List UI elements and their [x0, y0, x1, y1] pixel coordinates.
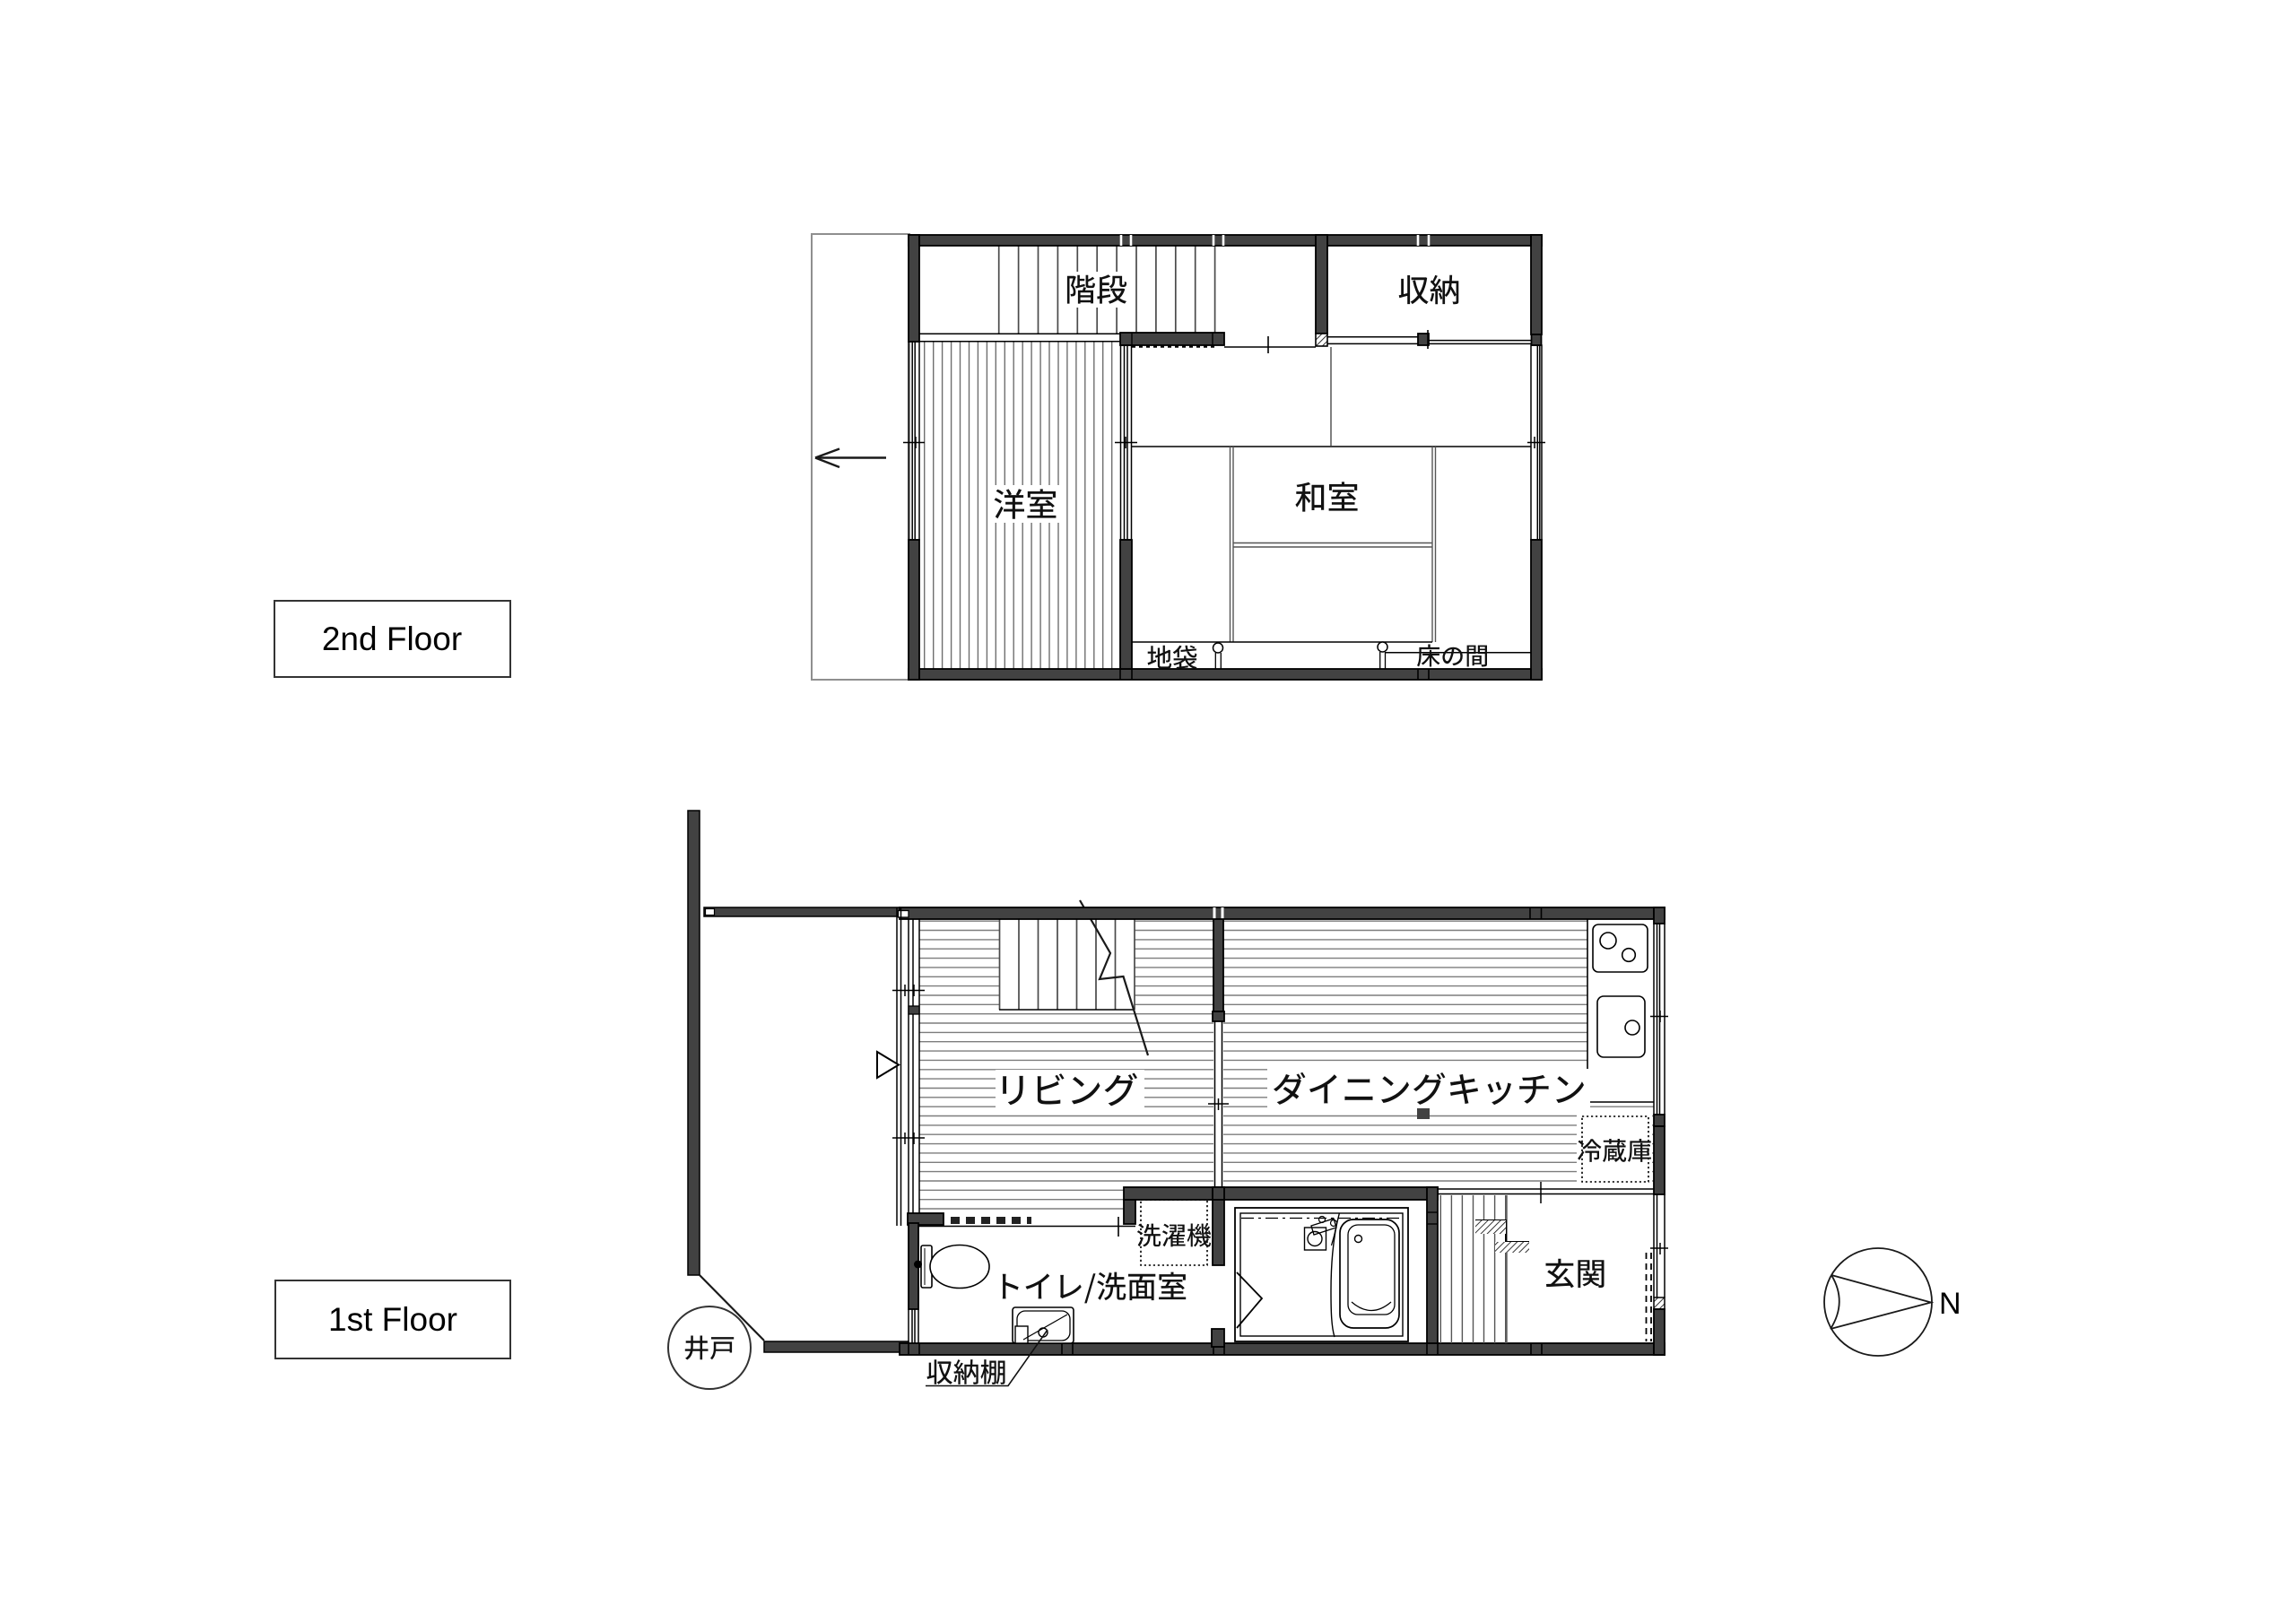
- svg-text:2nd Floor: 2nd Floor: [322, 621, 462, 657]
- svg-text:1st Floor: 1st Floor: [328, 1301, 457, 1338]
- svg-text:N: N: [1939, 1287, 1961, 1321]
